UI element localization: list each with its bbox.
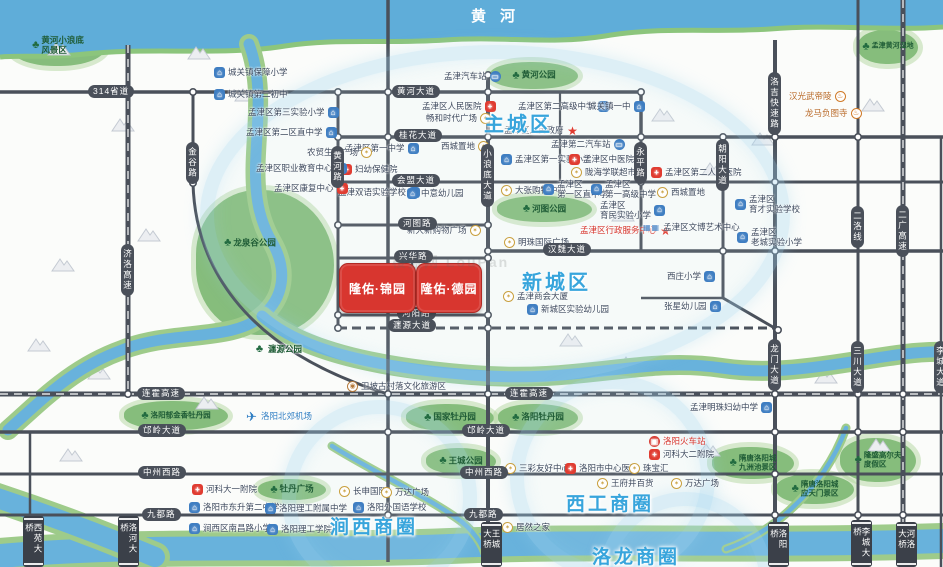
road-node [125, 391, 131, 397]
map-poi: ✶居然之家 [502, 522, 550, 533]
train-icon: ▣ [649, 436, 660, 447]
tree-icon: ♣ [792, 484, 799, 495]
mountain-icon [752, 133, 774, 145]
road-label: 金谷路 [186, 142, 199, 184]
road-node [772, 134, 778, 140]
park-label: ♣隆盛高尔夫度假区 [855, 451, 902, 468]
district-label: 洛龙商圈 [592, 542, 680, 567]
tree-icon: ♣ [855, 455, 862, 466]
map-poi: ⌂孟津区第一高级中学 [591, 179, 656, 199]
park-name: 国家牡丹园 [433, 413, 476, 423]
mountain-icon [52, 259, 74, 271]
map-poi: ✶长申国际 [339, 486, 387, 497]
road-label: 汉魏大道 [543, 243, 591, 256]
poi-label: 孟津区第一高级中学 [605, 179, 656, 199]
map-poi: ✶陇海学联超市 [571, 167, 636, 178]
poi-label: 洛阳理工学院 [281, 524, 332, 534]
park-label: ♣洛阳郁金香牡丹园 [141, 410, 210, 421]
park-label: ♣牡丹广场 [270, 484, 313, 495]
school-icon: ⌂ [265, 503, 276, 514]
map-poi: ♨汉光武帝陵 [789, 91, 846, 102]
hospital-icon: + [649, 449, 660, 460]
map-poi: ✶西城置地 [657, 187, 705, 198]
poi-label: 孟津区文博艺术中心 [663, 222, 740, 232]
school-icon: ⌂ [214, 89, 225, 100]
poi-label: 瀍源公园 [268, 344, 302, 354]
district-label: 新城区 [522, 266, 591, 295]
tree-icon: ♣ [523, 204, 530, 215]
park-name: 王城公园 [449, 456, 483, 466]
park-label: ♣隋唐洛阳城应天门景区 [792, 480, 839, 497]
poi-label: 卫坡古村落文化旅游区 [361, 381, 446, 391]
poi-label: 珠宝汇 [643, 463, 669, 473]
school-icon: ⌂ [189, 523, 200, 534]
road-node [385, 89, 391, 95]
map-poi: ✶王府井百货 [597, 478, 654, 489]
mall-icon: ✶ [504, 237, 515, 248]
hospital-icon: + [565, 463, 576, 474]
school-icon: ⌂ [407, 188, 418, 199]
poi-label: 洛阳北郊机场 [261, 411, 312, 421]
map-poi: +孟津区中医院 [569, 154, 634, 165]
school-icon: ⌂ [408, 143, 419, 154]
temple-icon: ♨ [835, 91, 846, 102]
road-node [485, 248, 491, 254]
tree-icon: ♣ [224, 238, 231, 249]
park-label: ♣洛阳牡丹园 [512, 412, 564, 423]
road-label: 黄河路 [331, 146, 344, 188]
poi-label: 孟津区育才实验学校 [749, 194, 800, 214]
mall-icon: ✶ [629, 463, 640, 474]
road-label: 李城大道 [934, 341, 943, 393]
road-node [772, 391, 778, 397]
bridge-label: 王城大桥 [481, 522, 502, 567]
map-poi: ◉卫坡古村落文化旅游区 [347, 381, 446, 392]
poi-label: 孟津区康复中心 [274, 183, 334, 193]
road-node [190, 89, 196, 95]
poi-label: 孟津明珠妇幼中学 [690, 402, 758, 412]
map-poi: +河科大一附院 [192, 484, 257, 495]
road-node [720, 248, 726, 254]
road-label: 朝阳大道 [716, 139, 729, 191]
poi-label: 西庄小学 [667, 271, 701, 281]
map-poi: ⌂孟津明珠妇幼中学 [690, 402, 772, 413]
park-name: 黄河小浪底风景区 [41, 36, 84, 56]
park-label: ♣隋唐洛阳城九洲池景区 [730, 454, 777, 471]
map-poi: ⌂张星幼儿园 [664, 301, 721, 312]
road-node [638, 89, 644, 95]
tree-icon: ♣ [270, 484, 277, 495]
mall-icon: ✶ [597, 478, 608, 489]
temple-icon: ♨ [851, 108, 862, 119]
school-icon: ⌂ [501, 154, 512, 165]
road-node [485, 222, 491, 228]
road-node [772, 512, 778, 518]
bridge-label: 洛阳桥 [768, 522, 789, 567]
map-poi: ⌂孟津区老城实验小学 [737, 227, 802, 247]
map-poi: ♣瀍源公园 [254, 344, 302, 355]
mall-icon: ✶ [501, 185, 512, 196]
mountain-icon [112, 119, 134, 131]
poi-label: 孟津双语实验学校 [338, 187, 406, 197]
map-poi: +河科大二附院 [649, 449, 714, 460]
mountain-icon [862, 99, 884, 111]
park-name: 黄河公园 [522, 71, 556, 81]
mountain-icon [868, 439, 890, 451]
district-label: 涧西商圈 [330, 512, 418, 539]
tree-icon: ♣ [439, 456, 446, 467]
road-label: 二洛线 [851, 206, 864, 248]
poi-label: 孟津区职业教育中心 [256, 163, 333, 173]
tree-icon: ♣ [862, 42, 869, 53]
road-node [772, 248, 778, 254]
poi-label: 汉光武帝陵 [789, 91, 832, 101]
map-poi: ▦▦孟津区文博艺术中心 [643, 222, 740, 233]
road-label: 中州西路 [138, 466, 186, 479]
school-icon: ⌂ [543, 184, 554, 195]
plane-icon: ✈ [245, 411, 258, 422]
poi-label: 中意幼儿园 [421, 188, 464, 198]
map-poi: ⌂孟津区第三实验小学 [248, 107, 339, 118]
map-poi: ♨龙马负图寺 [805, 108, 862, 119]
road-node [485, 89, 491, 95]
road-node [772, 429, 778, 435]
tree-icon: ♣ [512, 70, 519, 81]
poi-label: 城关镇一中 [588, 101, 631, 111]
school-icon: ⌂ [189, 502, 200, 513]
school-icon: ⌂ [737, 232, 748, 243]
road-label: 连霍高速 [505, 387, 553, 400]
mall-icon: ✶ [470, 225, 481, 236]
road-label: 河图路 [398, 217, 437, 230]
park-label: ♣河图公园 [523, 204, 566, 215]
road-label: 兴华路 [394, 250, 433, 263]
tree-icon: ♣ [254, 344, 265, 355]
village-icon: ◉ [347, 381, 358, 392]
park-label: ♣孟津黄河湿地 [862, 42, 913, 53]
poi-label: 万达广场 [395, 487, 429, 497]
poi-label: 西城置地 [671, 187, 705, 197]
road-label: 永平路 [634, 142, 647, 184]
road-label: 二广高速 [896, 205, 909, 257]
poi-label: 涧西区南昌路小学 [203, 523, 271, 533]
map-poi: ⌂孟津区第二区直中学 [246, 127, 337, 138]
district-label: 西工商圈 [566, 489, 654, 516]
map-poi: ✈洛阳北郊机场 [245, 411, 312, 422]
mountain-icon [28, 339, 50, 351]
road-label: 邙岭大道 [138, 424, 186, 437]
road-node [900, 512, 906, 518]
road-node [335, 312, 341, 318]
road-node [485, 391, 491, 397]
mall-icon: ✶ [571, 167, 582, 178]
road-node [900, 391, 906, 397]
poi-label: 孟津区第三实验小学 [248, 107, 325, 117]
mall-icon: ✶ [502, 522, 513, 533]
mall-icon: ✶ [339, 486, 350, 497]
mountain-icon [196, 397, 218, 409]
map-poi: ⌂中意幼儿园 [407, 188, 464, 199]
school-icon: ⌂ [267, 524, 278, 535]
mountain-icon [138, 229, 160, 241]
mountain-icon [560, 334, 582, 346]
park-name: 洛阳牡丹园 [521, 413, 564, 423]
map-poi: ⌂西庄小学 [667, 271, 715, 282]
yellow-river-label: 黄河 [400, 5, 600, 26]
park-label: ♣龙泉谷公园 [224, 238, 276, 249]
poi-label: 龙马负图寺 [805, 108, 848, 118]
bridge-label: 李城大桥 [851, 520, 872, 567]
poi-label: 河科大一附院 [206, 484, 257, 494]
road-node [772, 471, 778, 477]
poi-label: 畅和时代广场 [426, 113, 477, 123]
road-label: 瀍源大道 [388, 319, 436, 332]
park-label: ♣国家牡丹园 [424, 412, 476, 423]
hospital-icon: + [569, 154, 580, 165]
map-poi: ⌂城关镇一中 [588, 101, 645, 112]
poi-label: 孟津区第二人民医院 [665, 167, 742, 177]
map-poi: +妇幼保健院 [341, 164, 398, 175]
tree-icon: ♣ [141, 410, 148, 421]
park-name: 隋唐洛阳城应天门景区 [801, 480, 839, 497]
mall-icon: ✶ [361, 147, 372, 158]
bridge-label: 西苑大桥 [23, 516, 44, 567]
mall-icon: ✶ [503, 291, 514, 302]
poi-label: 孟津第二汽车站 [551, 139, 611, 149]
map-stage: 黄河 楼盘网 LouPan ♣黄河小浪底风景区♣孟津黄河湿地♣黄河公园♣龙泉谷公… [0, 0, 943, 567]
road-line [723, 298, 778, 330]
school-icon: ⌂ [735, 199, 746, 210]
road-label: 314省道 [88, 85, 134, 98]
map-poi: ⌂涧西区南昌路小学 [189, 523, 271, 534]
mountain-icon [60, 449, 82, 461]
school-icon: ⌂ [591, 184, 602, 195]
school-icon: ⌂ [761, 402, 772, 413]
poi-label: 万达广场 [685, 478, 719, 488]
mall-icon: ✶ [381, 487, 392, 498]
park-name: 孟津黄河湿地 [872, 43, 914, 51]
map-poi: ✶万达广场 [381, 487, 429, 498]
road-node [335, 222, 341, 228]
road-node [485, 312, 491, 318]
map-poi: ▭孟津汽车站 [444, 71, 501, 82]
map-poi: ✶三彩友好中心 [505, 463, 570, 474]
poi-label: 城关镇保障小学 [228, 67, 288, 77]
school-icon: ⌂ [654, 205, 665, 216]
poi-label: 西城置地 [441, 141, 475, 151]
poi-label: 孟津区中医院 [583, 154, 634, 164]
school-icon: ⌂ [326, 127, 337, 138]
park-label: ♣黄河小浪底风景区 [32, 36, 84, 56]
school-icon: ⌂ [704, 271, 715, 282]
map-poi: ⌂城关镇保障小学 [214, 67, 288, 78]
bus-icon: ▭ [614, 139, 625, 150]
road-node [900, 429, 906, 435]
school-icon: ⌂ [634, 101, 645, 112]
road-node [772, 179, 778, 185]
poi-label: 妇幼保健院 [355, 164, 398, 174]
road-label: 龙门大道 [768, 339, 781, 391]
road-label: 桂花大道 [394, 129, 442, 142]
park-label: ♣王城公园 [439, 456, 482, 467]
star-icon: ★ [567, 125, 579, 136]
road-node [485, 325, 491, 331]
road-node [385, 134, 391, 140]
poi-label: 张星幼儿园 [664, 301, 707, 311]
map-poi: ⌂孟津区育民实验小学 [600, 200, 665, 220]
map-poi: ⌂新城区实验幼儿园 [527, 304, 609, 315]
road-label: 中州西路 [460, 466, 508, 479]
poi-label: 孟津汽车站 [444, 71, 487, 81]
road-node [335, 89, 341, 95]
road-node [638, 134, 644, 140]
poi-label: 新城区实验幼儿园 [541, 304, 609, 314]
road-node [485, 255, 491, 261]
school-icon: ⌂ [328, 107, 339, 118]
school-icon: ⌂ [710, 301, 721, 312]
poi-label: 三彩友好中心 [519, 463, 570, 473]
buildings-icon: ▦▦ [643, 222, 660, 233]
road-label: 九都路 [142, 508, 181, 521]
park-name: 龙泉谷公园 [233, 238, 276, 248]
road-label: 九都路 [464, 508, 503, 521]
poi-label: 河科大二附院 [663, 449, 714, 459]
poi-label: 孟津区老城实验小学 [751, 227, 802, 247]
map-poi: ✶珠宝汇 [629, 463, 669, 474]
road-node [855, 512, 861, 518]
road-node [385, 429, 391, 435]
map-poi: ⌂洛阳理工学院 [267, 524, 332, 535]
park-name: 隋唐洛阳城九洲池景区 [739, 454, 777, 471]
school-icon: ⌂ [527, 304, 538, 315]
school-icon: ⌂ [214, 67, 225, 78]
mall-icon: ✶ [657, 187, 668, 198]
park-name: 隆盛高尔夫度假区 [864, 451, 902, 468]
map-poi: ▣洛阳火车站 [649, 436, 706, 447]
poi-label: 孟津区育民实验小学 [600, 200, 651, 220]
park-label: ♣黄河公园 [512, 70, 555, 81]
project-block: 隆佑·德园 [416, 263, 482, 313]
road-label: 三川大道 [851, 341, 864, 393]
poi-label: 城关镇第二初中 [228, 89, 288, 99]
mall-icon: ✶ [671, 478, 682, 489]
map-poi: ✶畅和时代广场 [426, 113, 491, 124]
road-label: 会盟大道 [392, 174, 440, 187]
tree-icon: ♣ [32, 41, 39, 52]
road-node [775, 327, 781, 333]
poi-label: 王府井百货 [611, 478, 654, 488]
road-label: 小浪底大道 [481, 144, 494, 207]
bridge-label: 洛河大桥 [118, 516, 139, 567]
map-poi: +洛阳市中心医院 [565, 463, 639, 474]
map-poi: ⌂孟津区育才实验学校 [735, 194, 800, 214]
project-block: 隆佑·锦园 [339, 263, 416, 313]
road-label: 济洛高速 [121, 244, 134, 296]
road-label: 洛吉快速路 [768, 72, 781, 135]
tree-icon: ♣ [512, 412, 519, 423]
poi-label: 孟津区人民医院 [422, 101, 482, 111]
poi-label: 洛阳火车站 [663, 436, 706, 446]
hospital-icon: + [192, 484, 203, 495]
map-poi: ✶万达广场 [671, 478, 719, 489]
map-poi: ⌂城关镇第二初中 [214, 89, 288, 100]
park-name: 河图公园 [532, 204, 566, 214]
poi-label: 居然之家 [516, 522, 550, 532]
bus-icon: ▭ [490, 71, 501, 82]
tree-icon: ♣ [424, 412, 431, 423]
road-node [335, 325, 341, 331]
road-label: 连霍高速 [137, 387, 185, 400]
tree-icon: ♣ [730, 458, 737, 469]
poi-label: 孟津区第二区直中学 [246, 127, 323, 137]
mountain-icon [652, 109, 674, 121]
map-poi: ▭孟津第二汽车站 [551, 139, 625, 150]
hospital-icon: + [651, 167, 662, 178]
road-label: 黄河大道 [392, 85, 440, 98]
district-label: 主城区 [484, 108, 553, 137]
poi-label: 陇海学联超市 [585, 167, 636, 177]
road-node [855, 134, 861, 140]
bridge-label: 河洛大桥 [896, 522, 917, 567]
road-node [855, 429, 861, 435]
road-label: 邙岭大道 [462, 424, 510, 437]
park-name: 牡丹广场 [280, 485, 314, 495]
park-name: 洛阳郁金香牡丹园 [151, 411, 211, 420]
